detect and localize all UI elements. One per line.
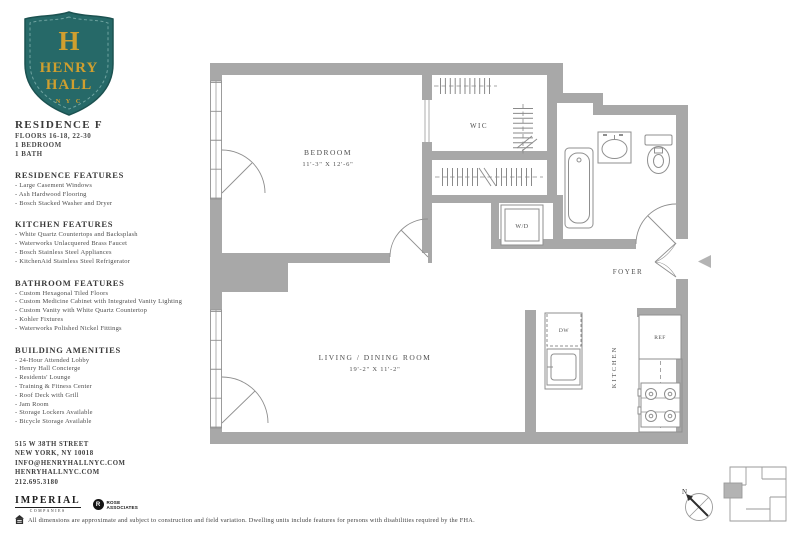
north-label: N	[682, 488, 687, 496]
info-column: RESIDENCE F FLOORS 16-18, 22-30 1 BEDROO…	[15, 119, 199, 513]
section-heading: BATHROOM FEATURES	[15, 278, 199, 288]
list-item: Residents' Lounge	[15, 374, 199, 383]
equal-housing-icon	[15, 511, 24, 529]
list-item: 24-Hour Attended Lobby	[15, 357, 199, 366]
contact-block: 515 W 38TH STREET NEW YORK, NY 10018 INF…	[15, 440, 199, 488]
dw-label: DW	[559, 328, 569, 334]
rose-sub-name: ASSOCIATES	[107, 505, 139, 510]
section-heading: BUILDING AMENITIES	[15, 345, 199, 355]
logo-monogram: H	[58, 26, 79, 56]
contact-website: HENRYHALLNYC.COM	[15, 468, 199, 478]
section-heading: KITCHEN FEATURES	[15, 219, 199, 229]
logo-name-2: HALL	[46, 77, 93, 93]
bedroom-label: BEDROOM	[304, 148, 352, 157]
kitchen-sink-fixture	[547, 349, 580, 385]
ref-label: REF	[654, 335, 666, 341]
residence-baths: 1 BATH	[15, 150, 199, 159]
stove-fixture	[638, 383, 680, 427]
living-label: LIVING / DINING ROOM	[319, 353, 432, 362]
residence-floors: FLOORS 16-18, 22-30	[15, 132, 199, 141]
compass: N	[678, 486, 718, 531]
list-item: Large Casement Windows	[15, 182, 199, 191]
residence-bedrooms: 1 BEDROOM	[15, 141, 199, 150]
list-item: KitchenAid Stainless Steel Refrigerator	[15, 258, 199, 267]
rose-wordmark: ROSE ASSOCIATES	[107, 500, 139, 510]
list-item: Waterworks Unlacquered Brass Faucet	[15, 240, 199, 249]
imperial-wordmark: IMPERIAL	[15, 496, 81, 506]
logo-name-1: HENRY	[40, 60, 99, 76]
closet-hangers	[425, 86, 543, 186]
door-swings	[222, 150, 676, 423]
toilet-fixture	[645, 135, 672, 174]
entry-arrow-icon	[698, 255, 711, 268]
list-item: Training & Fitness Center	[15, 383, 199, 392]
living-dims: 19'-2" X 11'-2"	[349, 366, 400, 373]
key-plan	[720, 463, 794, 532]
henry-hall-logo: H HENRY HALL N Y C	[17, 8, 121, 120]
kitchen-features-section: KITCHEN FEATURES White Quartz Countertop…	[15, 219, 199, 266]
unit-location-highlight	[724, 483, 742, 498]
kitchen-label: KITCHEN	[611, 346, 618, 389]
list-item: Kohler Fixtures	[15, 316, 199, 325]
floorplan-flyer: H HENRY HALL N Y C RESIDENCE F FLOORS 16…	[0, 0, 800, 533]
list-item: Bicycle Storage Available	[15, 418, 199, 427]
contact-email: INFO@HENRYHALLNYC.COM	[15, 459, 199, 469]
list-item: Bosch Stacked Washer and Dryer	[15, 200, 199, 209]
address-line-1: 515 W 38TH STREET	[15, 440, 199, 450]
list-item: Custom Hexagonal Tiled Floors	[15, 290, 199, 299]
wic-label: WIC	[470, 122, 488, 130]
residence-name: RESIDENCE F	[15, 119, 199, 132]
rose-associates-logo: R ROSE ASSOCIATES	[93, 499, 139, 510]
contact-phone: 212.695.3180	[15, 478, 199, 488]
feature-list: Custom Hexagonal Tiled Floors Custom Med…	[15, 290, 199, 334]
building-amenities-section: BUILDING AMENITIES 24-Hour Attended Lobb…	[15, 345, 199, 427]
footer: All dimensions are approximate and subje…	[15, 511, 475, 529]
logo-city: N Y C	[56, 98, 83, 105]
list-item: Roof Deck with Grill	[15, 392, 199, 401]
section-heading: RESIDENCE FEATURES	[15, 170, 199, 180]
feature-list: Large Casement Windows Ash Hardwood Floo…	[15, 182, 199, 208]
list-item: Storage Lockers Available	[15, 409, 199, 418]
disclaimer-text: All dimensions are approximate and subje…	[28, 517, 475, 524]
floor-plan: BEDROOM 11'-3" X 12'-6" WIC W/D FOYER LI…	[195, 55, 717, 484]
list-item: Custom Medicine Cabinet with Integrated …	[15, 298, 199, 307]
list-item: Custom Vanity with White Quartz Countert…	[15, 307, 199, 316]
rose-circle-icon: R	[93, 499, 104, 510]
residence-features-section: RESIDENCE FEATURES Large Casement Window…	[15, 170, 199, 208]
bathroom-features-section: BATHROOM FEATURES Custom Hexagonal Tiled…	[15, 278, 199, 334]
feature-list: 24-Hour Attended Lobby Henry Hall Concie…	[15, 357, 199, 427]
foyer-label: FOYER	[613, 268, 643, 276]
list-item: Henry Hall Concierge	[15, 365, 199, 374]
list-item: Waterworks Polished Nickel Fittings	[15, 325, 199, 334]
bedroom-dims: 11'-3" X 12'-6"	[302, 161, 353, 168]
list-item: White Quartz Countertops and Backsplash	[15, 231, 199, 240]
sink-fixture	[598, 132, 631, 163]
feature-list: White Quartz Countertops and Backsplash …	[15, 231, 199, 266]
wd-label: W/D	[515, 224, 528, 230]
list-item: Ash Hardwood Flooring	[15, 191, 199, 200]
list-item: Jam Room	[15, 401, 199, 410]
address-line-2: NEW YORK, NY 10018	[15, 449, 199, 459]
list-item: Bosch Stainless Steel Appliances	[15, 249, 199, 258]
bathtub-fixture	[565, 148, 593, 228]
